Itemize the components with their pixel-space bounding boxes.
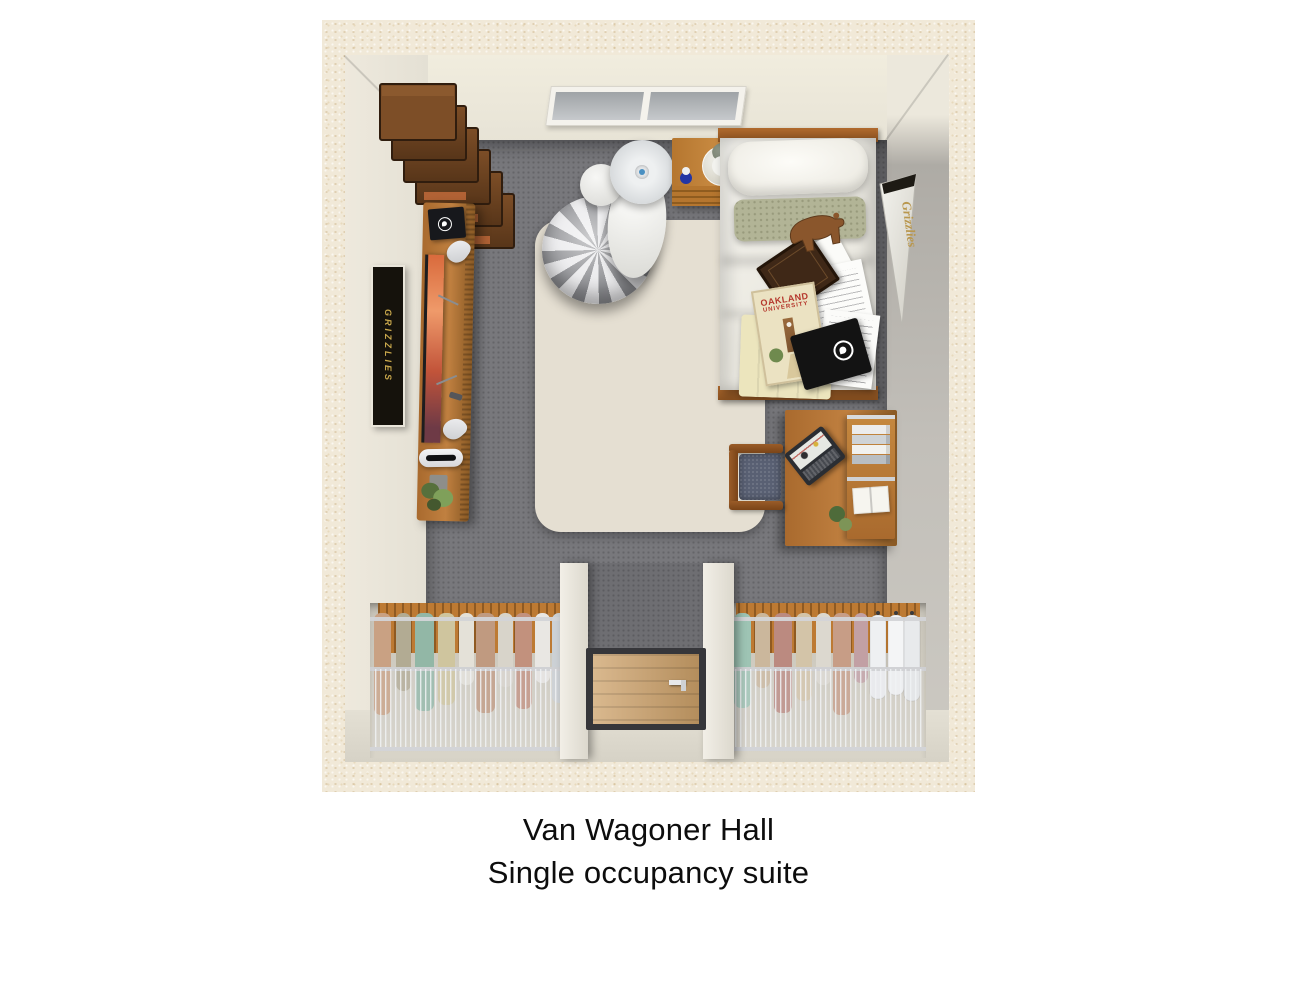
- closet-right: [730, 603, 926, 758]
- speaker-box: [428, 207, 466, 241]
- flat-tv: [421, 255, 444, 443]
- door-handle-stem: [681, 680, 686, 691]
- bear-body: [787, 211, 848, 255]
- caption-hall-name: Van Wagoner Hall: [322, 808, 975, 851]
- entry-carpet: [586, 563, 704, 657]
- closet-rail-bottom: [730, 747, 926, 751]
- wall-poster-frame: GRIZZLIES: [371, 265, 405, 427]
- grizzly-logo-icon: [831, 338, 856, 363]
- caption: Van Wagoner Hall Single occupancy suite: [322, 808, 975, 894]
- remote-control: [449, 391, 463, 401]
- chair-side-bar: [729, 450, 738, 506]
- wall-poster-text: GRIZZLIES: [383, 309, 393, 383]
- book-spine: [852, 425, 890, 434]
- window-pane-left: [552, 92, 644, 120]
- window-pane-right: [647, 92, 739, 120]
- desk-plant-2: [839, 518, 852, 531]
- grizzly-logo-icon: [437, 217, 452, 232]
- closet-left-contents: [370, 603, 577, 758]
- clock-face: [786, 322, 792, 328]
- entry-door: [593, 654, 699, 724]
- book-stack: [852, 425, 890, 469]
- closet-wire-grid: [372, 669, 575, 751]
- grizzlies-pennant: Grizzlies: [874, 168, 920, 332]
- desk-chair: [729, 444, 785, 510]
- closet-left: [370, 603, 577, 758]
- plant-leaves-3: [427, 499, 441, 511]
- fan-blades: [610, 140, 674, 204]
- game-console: [419, 449, 463, 468]
- closet-wire-grid: [732, 669, 924, 751]
- lotion-bottle: [680, 172, 692, 184]
- closet-rail-bottom: [370, 747, 577, 751]
- book-spine: [852, 435, 890, 444]
- desk: [785, 410, 897, 546]
- book-spine: [852, 445, 890, 454]
- chair-front-bar: [729, 501, 783, 510]
- desk-hutch: [847, 415, 895, 539]
- hutch-rail-top: [847, 415, 895, 419]
- hutch-rail-mid: [847, 477, 895, 481]
- open-book: [852, 486, 890, 514]
- book-spine: [852, 455, 890, 464]
- lotion-bottle-cap: [682, 167, 690, 175]
- tv-console: [417, 202, 476, 521]
- entry-wall-right: [703, 563, 734, 759]
- entry-wall-left: [560, 563, 588, 759]
- window: [545, 86, 747, 126]
- open-book-spine-line: [869, 487, 873, 513]
- page: GRIZZLIES: [0, 0, 1300, 1000]
- white-pillow: [727, 138, 869, 197]
- closet-rail-top: [370, 617, 577, 621]
- grizzly-logo-mark: [442, 221, 447, 226]
- laptop: [784, 425, 846, 486]
- bed: OAKLAND UNIVERSITY: [716, 128, 880, 402]
- caption-room-type: Single occupancy suite: [322, 851, 975, 894]
- bush-left: [768, 347, 784, 363]
- closet-rail-top: [730, 617, 926, 621]
- door-threshold: [586, 648, 706, 730]
- fan-hub-dot: [639, 169, 645, 175]
- game-console-band: [426, 455, 456, 461]
- pennant-body: [880, 174, 916, 326]
- chair-cushion: [739, 454, 781, 500]
- closet-right-contents: [730, 603, 926, 758]
- grizzly-logo-mark: [839, 346, 848, 355]
- floor-plan-rendering: GRIZZLIES: [322, 20, 975, 792]
